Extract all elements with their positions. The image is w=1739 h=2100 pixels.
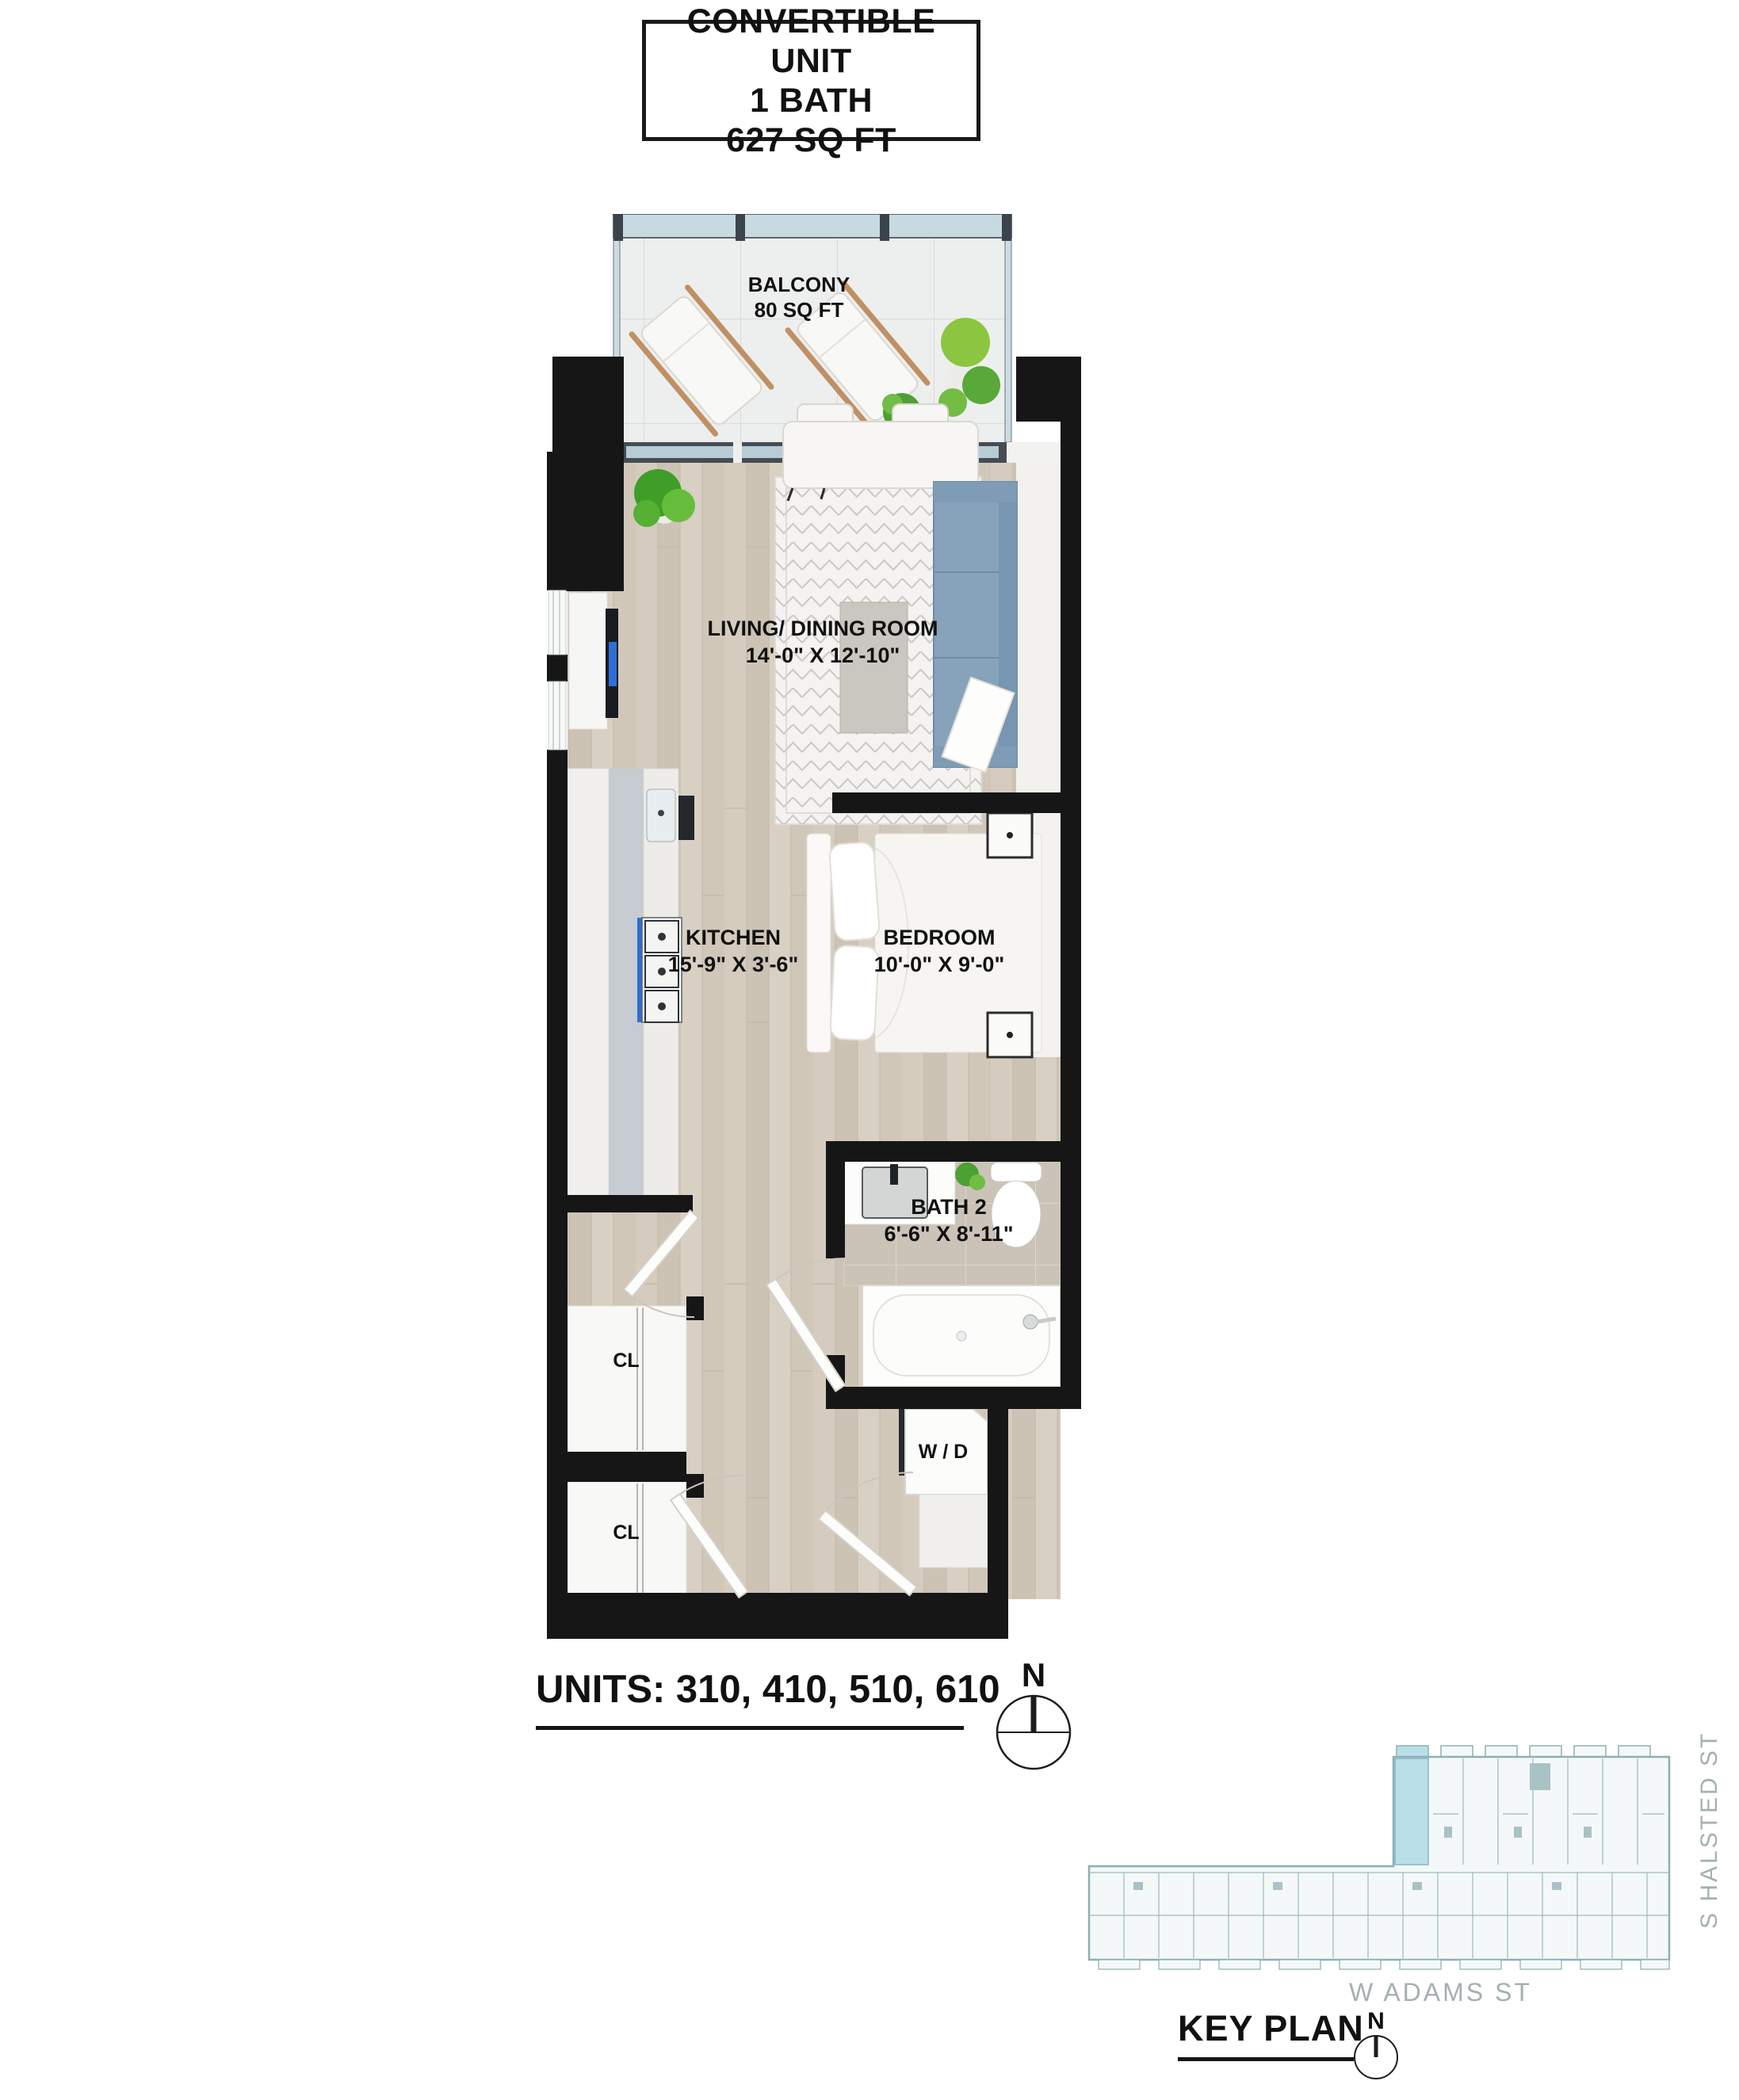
key-plan-building — [1089, 1757, 1669, 1960]
street-label-adams: W ADAMS ST — [1349, 1978, 1532, 2007]
washer-dryer-label: W / D — [919, 1441, 969, 1463]
living-dining-dims: 14'-0" X 12'-10" — [746, 643, 900, 667]
tv-screen — [609, 642, 617, 686]
tv-console — [569, 593, 618, 729]
bedroom-dims: 10'-0" X 9'-0" — [874, 953, 1005, 976]
key-plan-highlight-unit — [1395, 1758, 1428, 1865]
key-plan-north-compass-icon: N — [1346, 2005, 1409, 2084]
north-compass-icon: N — [989, 1653, 1078, 1772]
closet-upper — [568, 1306, 686, 1452]
closet-upper-label: CL — [613, 1350, 639, 1372]
closet-lower-label: CL — [613, 1522, 639, 1544]
living-dining-label: LIVING/ DINING ROOM — [707, 617, 938, 640]
toilet-tank — [991, 1163, 1041, 1182]
balcony-area: 80 SQ FT — [755, 298, 844, 322]
key-plan — [1086, 1732, 1688, 1993]
bathtub — [862, 1285, 1061, 1387]
pillow — [829, 842, 880, 941]
bedroom-label: BEDROOM — [884, 926, 996, 949]
compass-north-label: N — [1022, 1656, 1045, 1693]
kitchen-counter — [568, 769, 694, 1212]
kitchen-label: KITCHEN — [686, 926, 781, 949]
units-label: UNITS: 310, 410, 510, 610 — [536, 1667, 964, 1730]
pillow — [830, 945, 879, 1041]
dining-table — [783, 422, 978, 488]
title-card: CONVERTIBLE UNIT 1 BATH 627 SQ FT — [642, 20, 980, 141]
key-plan-title: KEY PLAN — [1178, 2008, 1354, 2061]
page: CONVERTIBLE UNIT 1 BATH 627 SQ FT — [0, 0, 1739, 2100]
sofa — [934, 482, 1017, 772]
title-line-3: 627 SQ FT — [726, 120, 896, 160]
bath-label: BATH 2 — [911, 1195, 987, 1219]
title-line-1: CONVERTIBLE UNIT — [646, 2, 977, 81]
key-plan-compass-north-label: N — [1367, 2008, 1385, 2034]
headboard — [807, 834, 831, 1052]
bath-dims: 6'-6" X 8'-11" — [884, 1222, 1013, 1246]
title-line-2: 1 BATH — [750, 81, 873, 120]
floor-plan: BALCONY 80 SQ FT LIVING/ DINING ROOM 14'… — [547, 214, 1086, 1640]
kitchen-dims: 15'-9" X 3'-6" — [668, 953, 799, 976]
balcony-label: BALCONY — [748, 273, 850, 296]
street-label-halsted: S HALSTED ST — [1696, 1732, 1723, 1929]
